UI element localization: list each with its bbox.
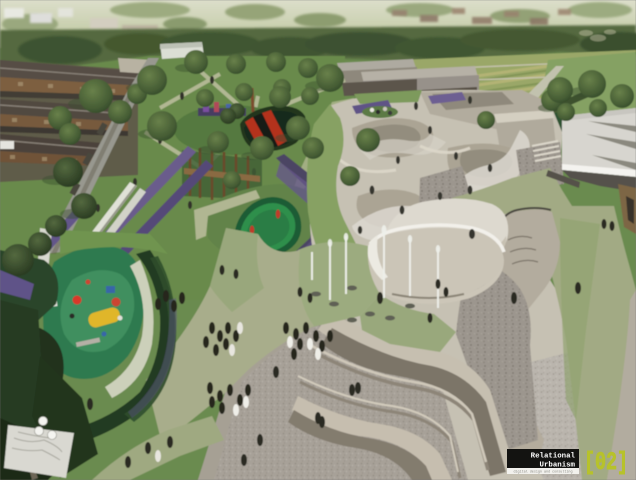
svg-text:Relational: Relational (531, 453, 576, 461)
svg-text:[02]: [02] (584, 448, 628, 477)
svg-text:digital design and consulting: digital design and consulting (513, 470, 572, 475)
svg-text:Urbanism: Urbanism (540, 462, 576, 470)
